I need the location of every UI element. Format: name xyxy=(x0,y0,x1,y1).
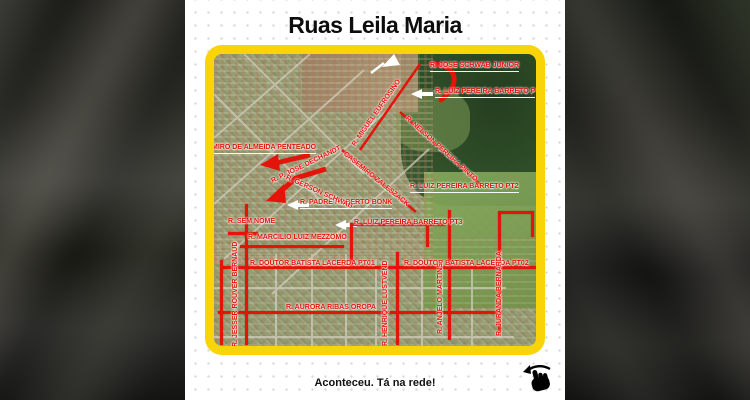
satellite-map: R. JOSE SCHWAB JUNIOR R. LUIZ PEREIRA BA… xyxy=(214,54,536,346)
street-line-northeast-drop xyxy=(531,211,534,237)
street-label-barreto-pt2: R. LUIZ PEREIRA BARRETO PT2 xyxy=(410,183,519,193)
map-frame: R. JOSE SCHWAB JUNIOR R. LUIZ PEREIRA BA… xyxy=(205,45,545,355)
street-line-northeast-spur xyxy=(498,211,534,214)
social-post-image: Ruas Leila Maria xyxy=(0,0,750,400)
street-label-jose-schwab: R. JOSE SCHWAB JUNIOR xyxy=(430,62,519,72)
street-label-marcilio-mezzomo: R. MARCILIO LUIZ MEZZOMO xyxy=(248,234,347,242)
street-label-batista-lacerda-pt02: R. DOUTOR BATISTA LACERDA PT02 xyxy=(404,260,529,268)
left-blur-panel xyxy=(0,0,185,400)
center-card: Ruas Leila Maria xyxy=(185,0,565,400)
street-label-barreto-pt3: R. LUIZ PEREIRA BARRETO PT3 xyxy=(354,219,463,227)
blurred-background-right xyxy=(565,0,750,400)
street-line-anjelo-martins xyxy=(448,210,451,340)
street-label-almeida-penteado: MIRO DE ALMEIDA PENTEADO xyxy=(214,144,316,154)
street-label-aurora-oropa: R. AURORA RIBAS OROPA xyxy=(286,304,376,312)
street-label-barreto-pt1: R. LUIZ PEREIRA BARRETO P xyxy=(435,88,535,98)
map-urban-texture-south xyxy=(214,235,536,346)
street-line-west-edge xyxy=(220,260,223,345)
street-label-anjelo-martins: R. ANJELO MARTINS xyxy=(437,238,445,334)
right-blur-panel xyxy=(565,0,750,400)
street-line-henrique xyxy=(396,252,399,345)
swipe-hand-icon xyxy=(521,363,555,393)
street-label-miguel-eufrosino: R. MIGUEL EUFROSINO xyxy=(351,78,403,148)
street-label-henrique-lustvend: R. HENRIQUE LUSTVEND xyxy=(382,250,390,346)
street-label-jesser-rouver: R. JESSER ROUVER BERNAUD xyxy=(232,222,240,346)
caption-text: Aconteceu. Tá na rede! xyxy=(185,377,565,389)
street-label-juranda-bernarda: R. JURANDA BERNARDA xyxy=(496,252,504,336)
north-arrow-icon xyxy=(371,54,400,73)
street-line-mezzomo xyxy=(240,245,344,248)
page-title: Ruas Leila Maria xyxy=(185,12,565,39)
street-label-nelson-pinto: R. NELSON PEREIRA PINTO xyxy=(403,115,478,184)
blurred-background-left xyxy=(0,0,185,400)
street-label-batista-lacerda-pt01: R. DOUTOR BATISTA LACERDA PT01 xyxy=(250,260,375,268)
